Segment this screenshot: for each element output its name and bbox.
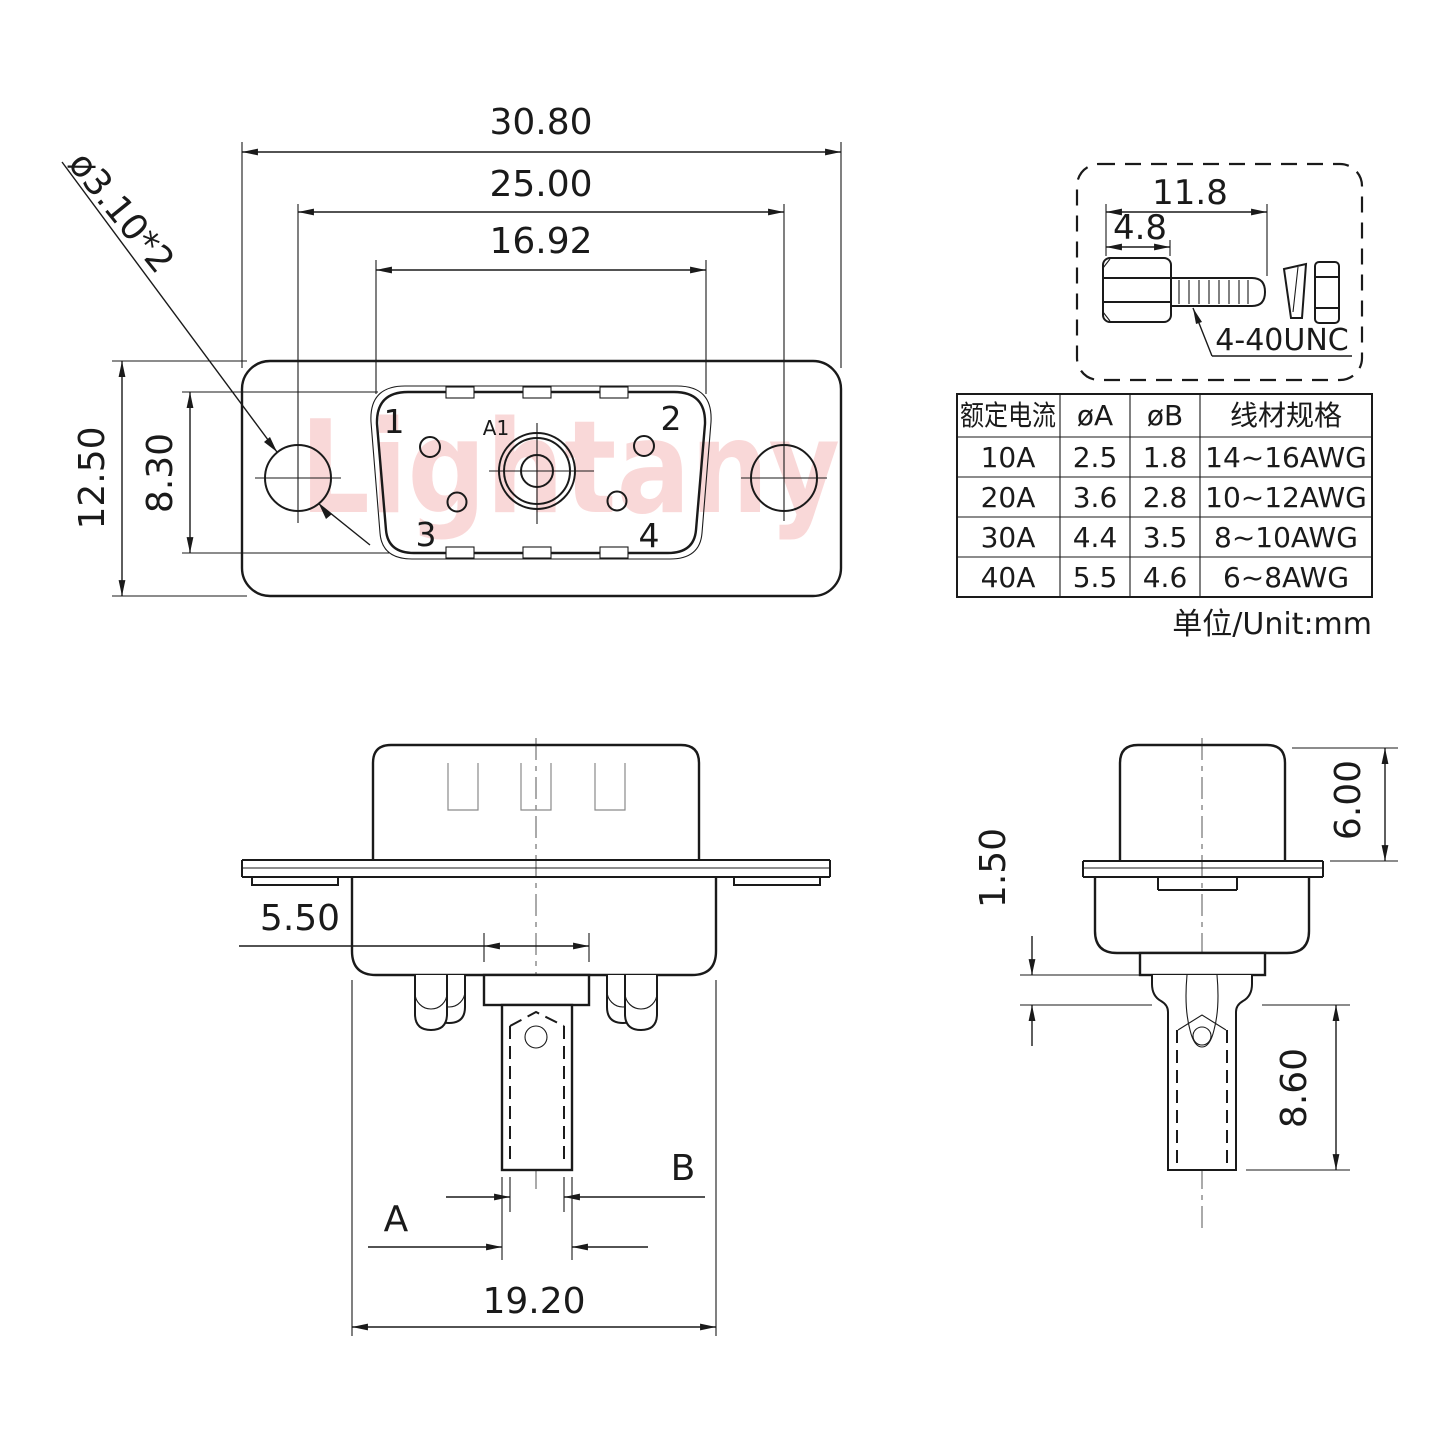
hood-outline — [373, 745, 699, 860]
dim-label-b: B — [671, 1148, 696, 1189]
dim-head-length: 4.8 — [1113, 208, 1167, 248]
washer-clip — [1284, 264, 1306, 318]
table-cell: 2.5 — [1073, 441, 1118, 474]
table-cell: 8~10AWG — [1214, 521, 1358, 554]
insert-lip — [1158, 877, 1237, 890]
pin-2-label: 2 — [661, 399, 682, 438]
dim-barrel-length: 8.60 — [1274, 1048, 1315, 1128]
table-cell: 20A — [981, 481, 1036, 514]
connector-body — [352, 877, 716, 975]
mount-flange-side — [1083, 861, 1323, 877]
table-cell: 5.5 — [1073, 561, 1118, 594]
table-cell: 4.4 — [1073, 521, 1118, 554]
table-cell: 30A — [981, 521, 1036, 554]
insert-step-side — [1140, 953, 1265, 975]
table-cell: 1.8 — [1143, 441, 1188, 474]
table-cell: 4.6 — [1143, 561, 1188, 594]
section-view: 5.50 B A 19.20 — [239, 738, 830, 1336]
pin-4-label: 4 — [639, 516, 660, 555]
table-cell: 2.8 — [1143, 481, 1188, 514]
dim-hole-spacing: 25.00 — [489, 164, 592, 205]
drawing-canvas: Lightany — [0, 0, 1440, 1440]
screw-head — [1103, 258, 1171, 322]
table-header-current: 额定电流 — [960, 399, 1056, 432]
technical-drawing-page: Lightany — [0, 0, 1440, 1440]
power-contact-barrel — [1152, 975, 1252, 1170]
dim-mount-hole-callout: ø3.10*2 — [60, 144, 182, 281]
table-header-dia-a: øA — [1077, 399, 1113, 432]
screw-detail: 11.8 4.8 4-40UNC — [1077, 164, 1362, 380]
contact-a1-label: A1 — [483, 416, 509, 440]
lock-nut — [1315, 262, 1339, 323]
dim-body-width: 19.20 — [482, 1281, 585, 1322]
table-cell: 6~8AWG — [1223, 561, 1349, 594]
dim-flange-offset: 1.50 — [973, 828, 1014, 908]
screw-thread — [1171, 278, 1265, 306]
table-cell: 14~16AWG — [1205, 441, 1367, 474]
dim-overall-width: 30.80 — [489, 102, 592, 143]
dim-insert-width: 16.92 — [489, 221, 592, 262]
dim-overall-height: 12.50 — [72, 426, 113, 529]
table-header-wire: 线材规格 — [1230, 399, 1342, 432]
dim-slot-width: 5.50 — [260, 898, 340, 939]
solder-pins-left — [415, 975, 465, 1030]
dim-hood-height: 6.00 — [1328, 760, 1369, 840]
pin-3-label: 3 — [416, 515, 437, 554]
side-view: 6.00 1.50 8.60 — [973, 738, 1398, 1230]
table-cell: 3.5 — [1143, 521, 1188, 554]
solder-pins-right — [607, 975, 657, 1030]
dim-insert-height: 8.30 — [140, 433, 181, 513]
table-cell: 40A — [981, 561, 1036, 594]
table-cell: 3.6 — [1073, 481, 1118, 514]
dim-label-a: A — [384, 1199, 409, 1240]
unit-note: 单位/Unit:mm — [1172, 607, 1372, 642]
pin-1-label: 1 — [384, 402, 405, 441]
power-barrel — [502, 1005, 572, 1170]
insert-step — [484, 975, 589, 1005]
spec-table: 额定电流 øA øB 线材规格 10A 2.5 1.8 14~16AWG 20A… — [957, 394, 1372, 642]
table-header-dia-b: øB — [1147, 399, 1183, 432]
table-cell: 10A — [981, 441, 1036, 474]
table-cell: 10~12AWG — [1205, 481, 1367, 514]
hood-outline-side — [1120, 745, 1285, 861]
thread-spec-label: 4-40UNC — [1215, 323, 1348, 358]
dim-screw-length: 11.8 — [1152, 173, 1228, 213]
